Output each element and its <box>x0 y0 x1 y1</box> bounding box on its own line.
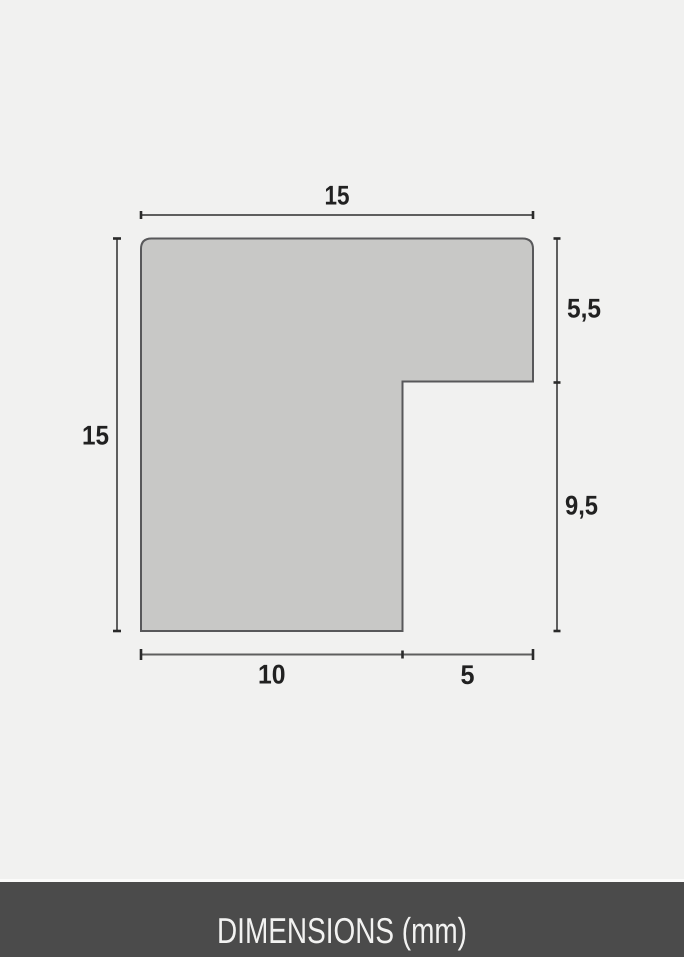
svg-text:10: 10 <box>258 660 286 690</box>
svg-text:5: 5 <box>461 660 475 690</box>
svg-text:5,5: 5,5 <box>567 294 601 324</box>
svg-text:15: 15 <box>82 421 109 451</box>
svg-text:15: 15 <box>325 181 350 211</box>
svg-text:DIMENSIONS (mm): DIMENSIONS (mm) <box>217 910 467 951</box>
svg-text:9,5: 9,5 <box>565 491 598 521</box>
